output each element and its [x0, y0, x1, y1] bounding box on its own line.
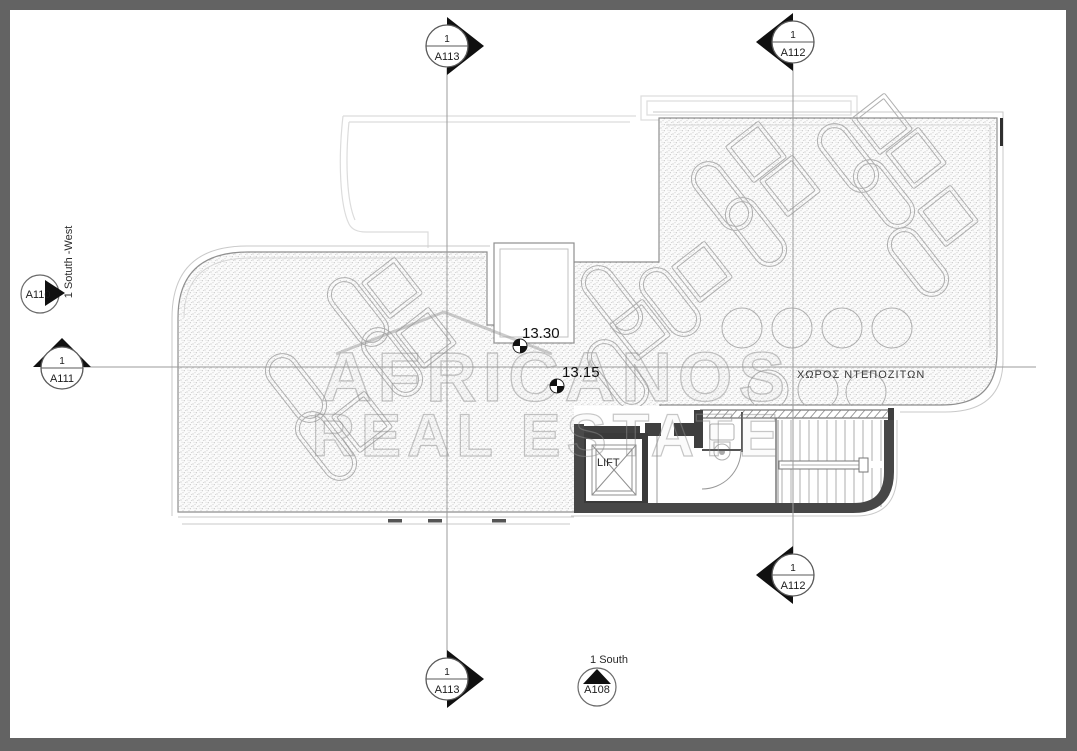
marker-sheet: A108	[584, 684, 610, 696]
marker-sheet: A113	[435, 51, 460, 63]
marker-number: 1	[444, 34, 450, 45]
marker-sheet: A111	[50, 373, 74, 385]
plan-canvas: LIFT AFRICANOS REAL ESTATE ΧΩΡΟΣ ΝΤΕΠΟΖΙ…	[0, 0, 1077, 751]
marker-sheet: A112	[781, 47, 806, 59]
drawing-frame: LIFT AFRICANOS REAL ESTATE ΧΩΡΟΣ ΝΤΕΠΟΖΙ…	[0, 0, 1077, 751]
marker-sheet: A113	[435, 684, 460, 696]
level-marker-icon	[550, 379, 564, 393]
southwest-ref-label: 1 Sotuth -West	[63, 226, 75, 299]
elevation-value-upper: 13.30	[522, 325, 560, 342]
marker-number: 1	[790, 30, 796, 41]
watermark-line2: REAL ESTATE	[312, 402, 785, 469]
elevation-value-lower: 13.15	[562, 364, 600, 381]
marker-number: 1	[790, 563, 796, 574]
tank-room-label: ΧΩΡΟΣ ΝΤΕΠΟΖΙΤΩΝ	[797, 369, 925, 381]
marker-number: 1	[444, 667, 450, 678]
section-marker-a108[interactable]: A108	[578, 668, 616, 706]
south-ref-label: 1 South	[590, 654, 628, 666]
marker-sheet: A110	[26, 289, 51, 301]
marker-number: 1	[59, 356, 65, 367]
level-marker-icon	[513, 339, 527, 353]
marker-sheet: A112	[781, 580, 806, 592]
